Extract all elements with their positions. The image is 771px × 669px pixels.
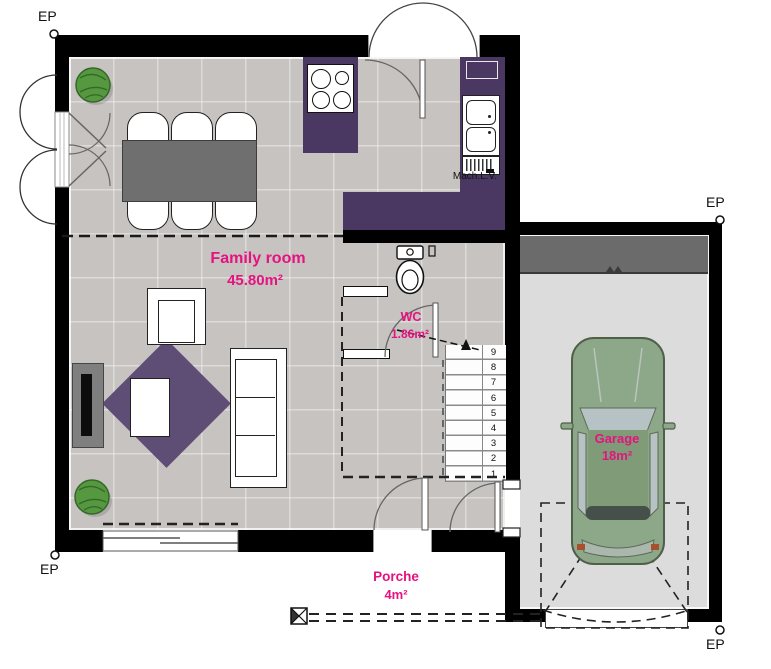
garage-area: 18m² [602, 448, 632, 463]
sink-basin [466, 100, 496, 125]
wc-name: WC [401, 310, 422, 324]
garage-wall-top [518, 222, 722, 235]
sofa [230, 348, 287, 488]
armchair-seat [158, 300, 195, 343]
stair-number: 8 [491, 363, 496, 373]
stove [307, 64, 354, 113]
porch-boundary [291, 608, 540, 624]
ep-marker [51, 551, 59, 559]
stove-burner [312, 91, 330, 109]
sink-basin [466, 127, 496, 152]
sink-drain [488, 115, 491, 118]
porch-area: 4m² [384, 587, 407, 602]
sofa-seats [235, 359, 277, 477]
ep-label-bottom-left: EP [40, 561, 59, 577]
stair-number: 5 [491, 409, 496, 419]
family-room-area: 45.80m² [227, 272, 283, 289]
stove-burner [333, 91, 351, 109]
fridge [466, 61, 498, 79]
stair-number: 7 [491, 378, 496, 388]
porch-name: Porche [373, 569, 419, 584]
stair-number: 3 [491, 439, 496, 449]
meter-symbol [291, 608, 307, 624]
wall-left-upper [55, 35, 69, 112]
kitchen-sink [462, 95, 500, 156]
garage-wall-bottom-a [518, 609, 545, 622]
coffee-table [130, 378, 170, 437]
stair-number: 2 [491, 454, 496, 464]
stair-number: 6 [491, 394, 496, 404]
ep-label-top-right: EP [706, 194, 725, 210]
tv [81, 374, 92, 436]
top-door-opening [368, 35, 480, 57]
wc-wall-stub [343, 286, 388, 297]
garage-storage-band [518, 236, 708, 274]
floorplan-canvas: 987654321 [0, 0, 771, 669]
sink-drain [488, 131, 491, 134]
wc-wall-stub [343, 349, 390, 359]
kitchen-counter-bottom [343, 192, 505, 230]
family-room-name: Family room [210, 250, 305, 268]
garage-name: Garage [595, 431, 640, 446]
garage-floor [518, 235, 709, 609]
wall-bottom-a [55, 530, 103, 552]
dishwasher-label: Mach.L.V. [435, 171, 497, 182]
stair-number: 1 [491, 470, 496, 480]
ep-label-top-left: EP [38, 8, 57, 24]
ep-label-bottom-right: EP [706, 636, 725, 652]
stair-number: 4 [491, 424, 496, 434]
wc-area: 1.86m² [391, 327, 429, 341]
wall-right-upper [505, 35, 520, 480]
ep-marker [716, 626, 724, 634]
armchair [147, 288, 206, 345]
garage-wall-bottom-b [688, 609, 709, 622]
front-door-opening [373, 530, 432, 552]
garage-wall-right [709, 222, 722, 622]
stove-burner [335, 71, 349, 85]
staircase-numbers: 987654321 [483, 345, 504, 479]
tv-stand [72, 363, 104, 448]
sofa-cushion-divider [235, 397, 275, 398]
sofa-cushion-divider [235, 435, 275, 436]
wall-left-lower [55, 187, 69, 552]
wall-wc-top [343, 230, 505, 243]
dining-table [122, 140, 257, 202]
wall-bottom-b [238, 530, 373, 552]
garage-door-opening-wall [505, 481, 520, 537]
garage-door-panel [545, 609, 688, 628]
stove-burner [311, 69, 331, 89]
stair-number: 9 [491, 348, 496, 358]
